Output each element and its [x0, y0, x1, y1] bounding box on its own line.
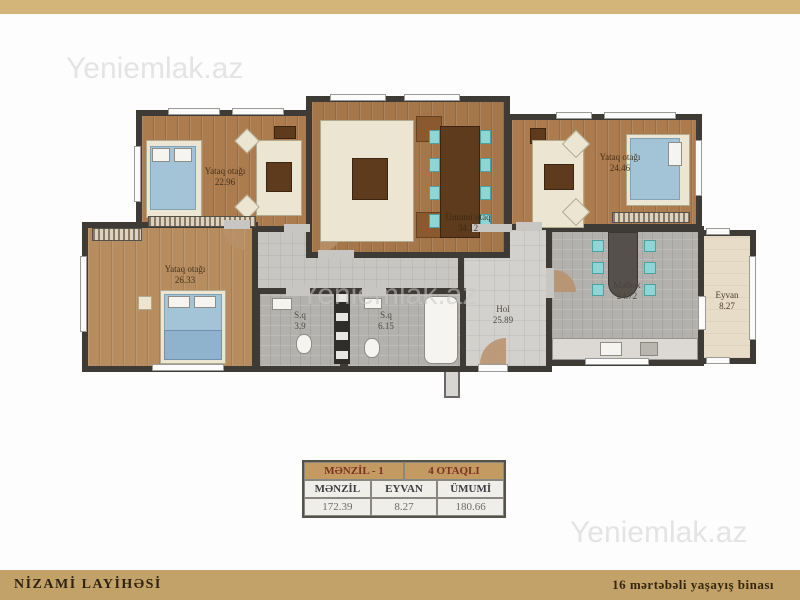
toilet-icon	[296, 334, 312, 354]
room-name: Mətbəx	[582, 280, 672, 291]
room-area: 24.46	[575, 163, 665, 174]
room-label-living: Ümumi otaq 34.12	[423, 212, 513, 234]
room-label-bedroom-top-right: Yataq otağı 24.46	[575, 152, 665, 174]
watermark-center: Yeniemlak.az	[300, 278, 477, 312]
toilet-icon	[364, 338, 380, 358]
room-count-cell: 4 OTAQLI	[404, 462, 504, 480]
window	[604, 112, 676, 119]
window	[706, 228, 730, 235]
coffee-table-icon	[352, 158, 388, 200]
window	[695, 140, 702, 196]
door-opening	[224, 220, 250, 229]
table-values-row: 172.39 8.27 180.66	[304, 498, 504, 516]
room-area: 3.9	[272, 321, 328, 332]
wardrobe-icon	[92, 228, 142, 241]
top-band	[0, 0, 800, 14]
table-header-row: MƏNZİL EYVAN ÜMUMİ	[304, 480, 504, 498]
apartment-summary-table: MƏNZİL - 1 4 OTAQLI MƏNZİL EYVAN ÜMUMİ 1…	[302, 460, 506, 518]
room-area: 22.96	[185, 177, 265, 188]
chair-icon	[644, 240, 656, 252]
apartment-number-cell: MƏNZİL - 1	[304, 462, 404, 480]
column-header-menzil: MƏNZİL	[304, 480, 371, 498]
room-area: 6.15	[358, 321, 414, 332]
coffee-table-icon	[266, 162, 292, 192]
door-opening	[284, 224, 310, 232]
chair-icon	[592, 262, 604, 274]
room-name: Ümumi otaq	[423, 212, 513, 223]
chair-icon	[429, 130, 440, 144]
window	[706, 357, 730, 364]
door-opening	[318, 250, 354, 258]
pillow-icon	[194, 296, 216, 308]
window	[585, 358, 649, 365]
window	[556, 112, 592, 119]
room-label-bedroom-bottom-left: Yataq otağı 26.33	[140, 264, 230, 286]
window	[168, 108, 220, 115]
room-label-kitchen: Mətbəx 24.72	[582, 280, 672, 302]
window	[80, 256, 87, 332]
sink-icon	[272, 298, 292, 310]
room-area: 8.27	[702, 301, 752, 312]
value-umumi-area: 180.66	[437, 498, 504, 516]
room-name: Eyvan	[702, 290, 752, 301]
value-eyvan-area: 8.27	[371, 498, 438, 516]
room-area: 25.89	[466, 315, 540, 326]
pillow-icon	[174, 148, 192, 162]
door-opening	[546, 268, 554, 298]
nightstand-icon	[138, 296, 152, 310]
tv-cabinet-icon	[274, 126, 296, 139]
project-name-label: NİZAMİ LAYİHƏSİ	[14, 577, 162, 593]
room-area: 26.33	[140, 275, 230, 286]
kitchen-sink-icon	[600, 342, 622, 356]
chair-icon	[592, 240, 604, 252]
coffee-table-icon	[544, 164, 574, 190]
chair-icon	[644, 262, 656, 274]
chair-icon	[480, 186, 491, 200]
column-header-umumi: ÜMUMİ	[437, 480, 504, 498]
window	[134, 146, 141, 202]
watermark-bottom-right: Yeniemlak.az	[570, 516, 747, 550]
kitchen-counter-icon	[552, 338, 698, 360]
pillow-icon	[668, 142, 682, 166]
pillow-icon	[168, 296, 190, 308]
room-label-bathroom-2: S.q 6.15	[358, 310, 414, 332]
room-label-balcony: Eyvan 8.27	[702, 290, 752, 312]
door-opening	[516, 222, 542, 230]
building-type-label: 16 mərtəbəli yaşayış binası	[612, 577, 774, 593]
blanket-icon	[164, 330, 222, 360]
room-name: Yataq otağı	[185, 166, 265, 177]
wardrobe-icon	[612, 212, 690, 223]
floor-plan-page: Yeniemlak.az Yeniemlak.az Yeniemlak.az	[0, 0, 800, 600]
watermark-top-left: Yeniemlak.az	[66, 52, 243, 86]
room-area: 24.72	[582, 291, 672, 302]
window	[152, 364, 224, 371]
entrance-door-gap	[478, 364, 508, 372]
room-label-bathroom-1: S.q 3.9	[272, 310, 328, 332]
chair-icon	[480, 130, 491, 144]
room-label-bedroom-top-left: Yataq otağı 22.96	[185, 166, 265, 188]
bottom-band: NİZAMİ LAYİHƏSİ 16 mərtəbəli yaşayış bin…	[0, 570, 800, 600]
room-name: Yataq otağı	[575, 152, 665, 163]
window	[330, 94, 386, 101]
room-name: Yataq otağı	[140, 264, 230, 275]
chair-icon	[429, 158, 440, 172]
window	[404, 94, 460, 101]
stove-icon	[640, 342, 658, 356]
column-header-eyvan: EYVAN	[371, 480, 438, 498]
chair-icon	[480, 158, 491, 172]
room-area: 34.12	[423, 223, 513, 234]
chair-icon	[429, 186, 440, 200]
value-menzil-area: 172.39	[304, 498, 371, 516]
table-title-row: MƏNZİL - 1 4 OTAQLI	[304, 462, 504, 480]
window	[232, 108, 284, 115]
pillow-icon	[152, 148, 170, 162]
